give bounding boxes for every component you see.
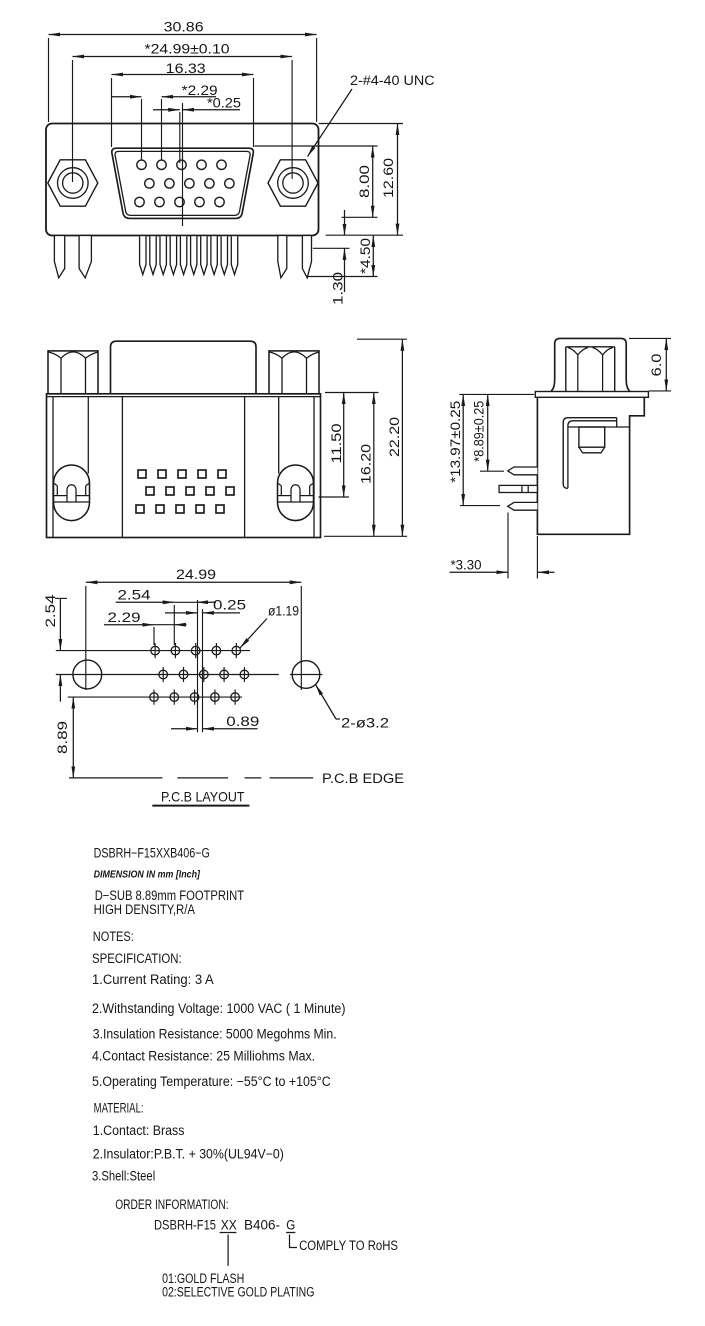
svg-text:3.Shell:Steel: 3.Shell:Steel: [92, 1169, 155, 1184]
svg-text:COMPLY TO RoHS: COMPLY TO RoHS: [299, 1238, 398, 1253]
svg-text:0.89: 0.89: [226, 714, 259, 729]
svg-text:30.86: 30.86: [164, 20, 204, 35]
svg-text:DSBRH-F15: DSBRH-F15: [154, 1217, 216, 1232]
svg-text:1.Current Rating: 3 A: 1.Current Rating: 3 A: [92, 972, 214, 987]
svg-text:B406-: B406-: [244, 1217, 280, 1232]
svg-text:22.20: 22.20: [387, 417, 402, 457]
svg-text:*3.30: *3.30: [451, 558, 482, 573]
svg-text:2.Withstanding Voltage: 1000: 2.Withstanding Voltage: 1000 VAC ( 1 Min…: [92, 1001, 346, 1016]
svg-text:HIGH DENSITY,R/A: HIGH DENSITY,R/A: [94, 902, 195, 917]
svg-text:11.50: 11.50: [329, 424, 344, 464]
svg-text:SPECIFICATION:: SPECIFICATION:: [92, 951, 182, 966]
svg-text:D−SUB 8.89mm FOOTPRINT: D−SUB 8.89mm FOOTPRINT: [95, 888, 244, 903]
svg-text:3.Insulation Resistance: 500: 3.Insulation Resistance: 5000 Megohms Mi…: [93, 1026, 337, 1041]
svg-text:1.Contact: Brass: 1.Contact: Brass: [93, 1123, 185, 1138]
svg-text:16.20: 16.20: [359, 444, 374, 484]
svg-text:*24.99±0.10: *24.99±0.10: [145, 42, 230, 57]
svg-text:2-ø3.2: 2-ø3.2: [341, 716, 389, 731]
svg-text:6.0: 6.0: [649, 354, 664, 377]
svg-text:0.25: 0.25: [213, 598, 246, 613]
svg-text:2.29: 2.29: [108, 610, 141, 625]
svg-text:DSBRH−F15XXB406−G: DSBRH−F15XXB406−G: [94, 845, 210, 860]
svg-text:5.Operating Temperature: −55: 5.Operating Temperature: −55°C to +105°C: [92, 1074, 331, 1089]
svg-text:2-#4-40 UNC: 2-#4-40 UNC: [350, 73, 435, 88]
svg-text:G: G: [286, 1217, 295, 1232]
svg-text:NOTES:: NOTES:: [93, 929, 134, 944]
svg-text:MATERIAL:: MATERIAL:: [94, 1101, 144, 1116]
svg-text:02:SELECTIVE GOLD PLATING: 02:SELECTIVE GOLD PLATING: [162, 1284, 314, 1299]
svg-text:P.C.B LAYOUT: P.C.B LAYOUT: [161, 790, 245, 805]
svg-text:2.Insulator:P.B.T. + 30%(UL9: 2.Insulator:P.B.T. + 30%(UL94V−0): [93, 1147, 284, 1162]
svg-text:8.00: 8.00: [357, 165, 372, 198]
svg-text:ORDER INFORMATION:: ORDER INFORMATION:: [115, 1197, 228, 1212]
svg-text:*4.50: *4.50: [358, 238, 373, 274]
svg-text:2.54: 2.54: [118, 588, 152, 603]
svg-text:ø1.19: ø1.19: [268, 604, 299, 619]
svg-text:XX: XX: [221, 1217, 237, 1232]
svg-text:8.89: 8.89: [55, 721, 70, 754]
svg-text:24.99: 24.99: [176, 567, 216, 582]
svg-text:*0.25: *0.25: [207, 96, 241, 111]
svg-text:*13.97±0.25: *13.97±0.25: [448, 401, 463, 483]
svg-text:P.C.B EDGE: P.C.B EDGE: [322, 771, 404, 786]
svg-text:16.33: 16.33: [166, 61, 206, 76]
svg-text:4.Contact Resistance: 25 Mi: 4.Contact Resistance: 25 Milliohms Max.: [92, 1049, 315, 1064]
svg-text:1.30: 1.30: [330, 272, 345, 305]
svg-text:12.60: 12.60: [381, 158, 396, 198]
svg-text:*8.89±0.25: *8.89±0.25: [472, 401, 487, 462]
svg-text:DIMENSION IN mm [Inch]: DIMENSION IN mm [Inch]: [94, 869, 201, 880]
